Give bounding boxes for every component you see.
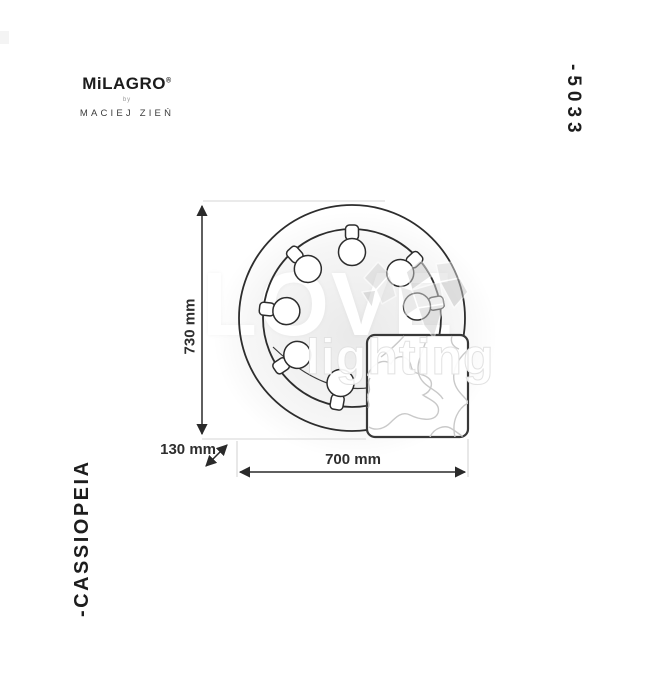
brand-block: MiLAGRO® by MACIEJ ZIEŃ xyxy=(72,74,182,119)
brand-designer: MACIEJ ZIEŃ xyxy=(72,108,182,119)
depth-dimension-label: 130 mm xyxy=(158,441,216,458)
brand-by-label: by xyxy=(72,97,182,103)
product-name-vertical: -CASSIOPEIA xyxy=(71,459,94,617)
watermark-lighting-text: lighting xyxy=(306,332,495,382)
model-number-vertical: -5033 xyxy=(562,64,584,138)
height-dimension-label: 730 mm xyxy=(182,287,199,367)
brand-logo: MiLAGRO® xyxy=(72,74,182,94)
bulb xyxy=(280,240,327,288)
registered-trademark-icon: ® xyxy=(166,77,172,84)
product-dimension-sheet: LOVE MiLAGRO® by MACIEJ ZIEŃ -5033 -CASS… xyxy=(0,0,650,677)
width-dimension-label: 700 mm xyxy=(313,451,393,468)
